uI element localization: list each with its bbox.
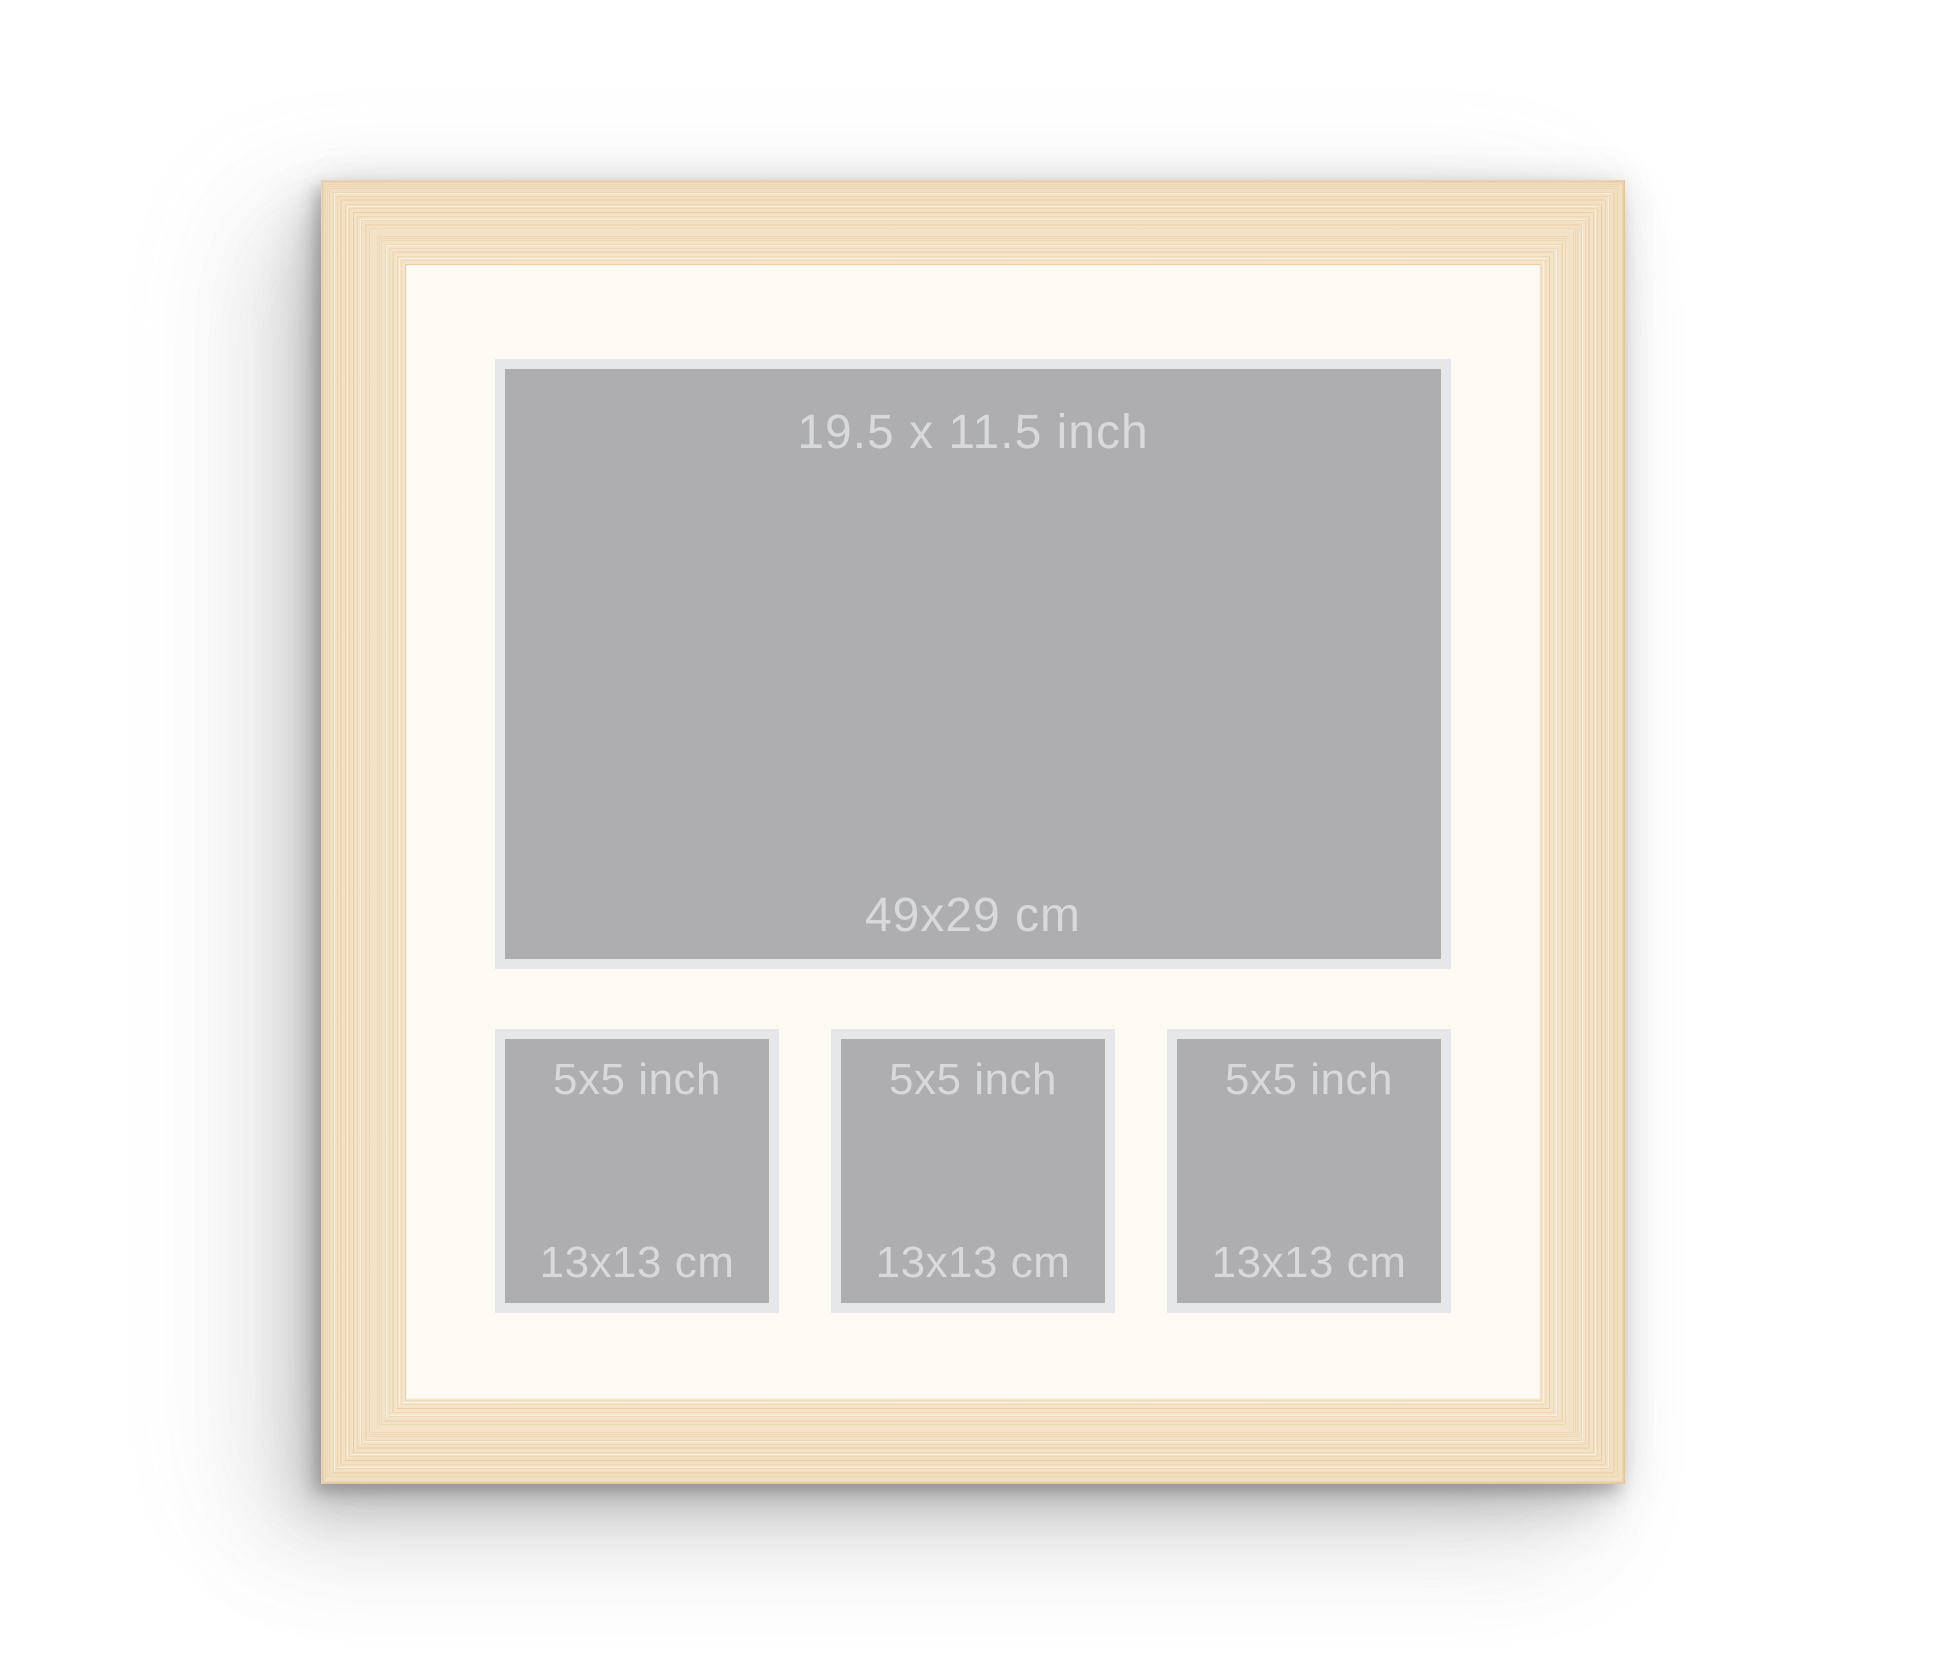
aperture-size-inch-label: 5x5 inch bbox=[553, 1055, 721, 1106]
aperture-size-cm-label: 13x13 cm bbox=[876, 1238, 1071, 1289]
picture-frame: 19.5 x 11.5 inch 49x29 cm 5x5 inch 13x13… bbox=[321, 180, 1625, 1484]
aperture-size-inch-label: 19.5 x 11.5 inch bbox=[797, 405, 1148, 460]
mat-board: 19.5 x 11.5 inch 49x29 cm 5x5 inch 13x13… bbox=[406, 265, 1540, 1399]
aperture-size-cm-label: 13x13 cm bbox=[540, 1238, 735, 1289]
aperture-size-cm-label: 13x13 cm bbox=[1212, 1238, 1407, 1289]
photo-aperture-small-1: 5x5 inch 13x13 cm bbox=[495, 1029, 779, 1313]
aperture-size-inch-label: 5x5 inch bbox=[889, 1055, 1057, 1106]
aperture-size-inch-label: 5x5 inch bbox=[1225, 1055, 1393, 1106]
aperture-size-cm-label: 49x29 cm bbox=[865, 888, 1081, 943]
photo-aperture-small-3: 5x5 inch 13x13 cm bbox=[1167, 1029, 1451, 1313]
product-mockup: 19.5 x 11.5 inch 49x29 cm 5x5 inch 13x13… bbox=[0, 0, 1946, 1668]
photo-aperture-small-2: 5x5 inch 13x13 cm bbox=[831, 1029, 1115, 1313]
small-aperture-row: 5x5 inch 13x13 cm 5x5 inch 13x13 cm 5x5 … bbox=[495, 1029, 1451, 1313]
mat-content: 19.5 x 11.5 inch 49x29 cm 5x5 inch 13x13… bbox=[495, 359, 1451, 1313]
photo-aperture-large: 19.5 x 11.5 inch 49x29 cm bbox=[495, 359, 1451, 969]
